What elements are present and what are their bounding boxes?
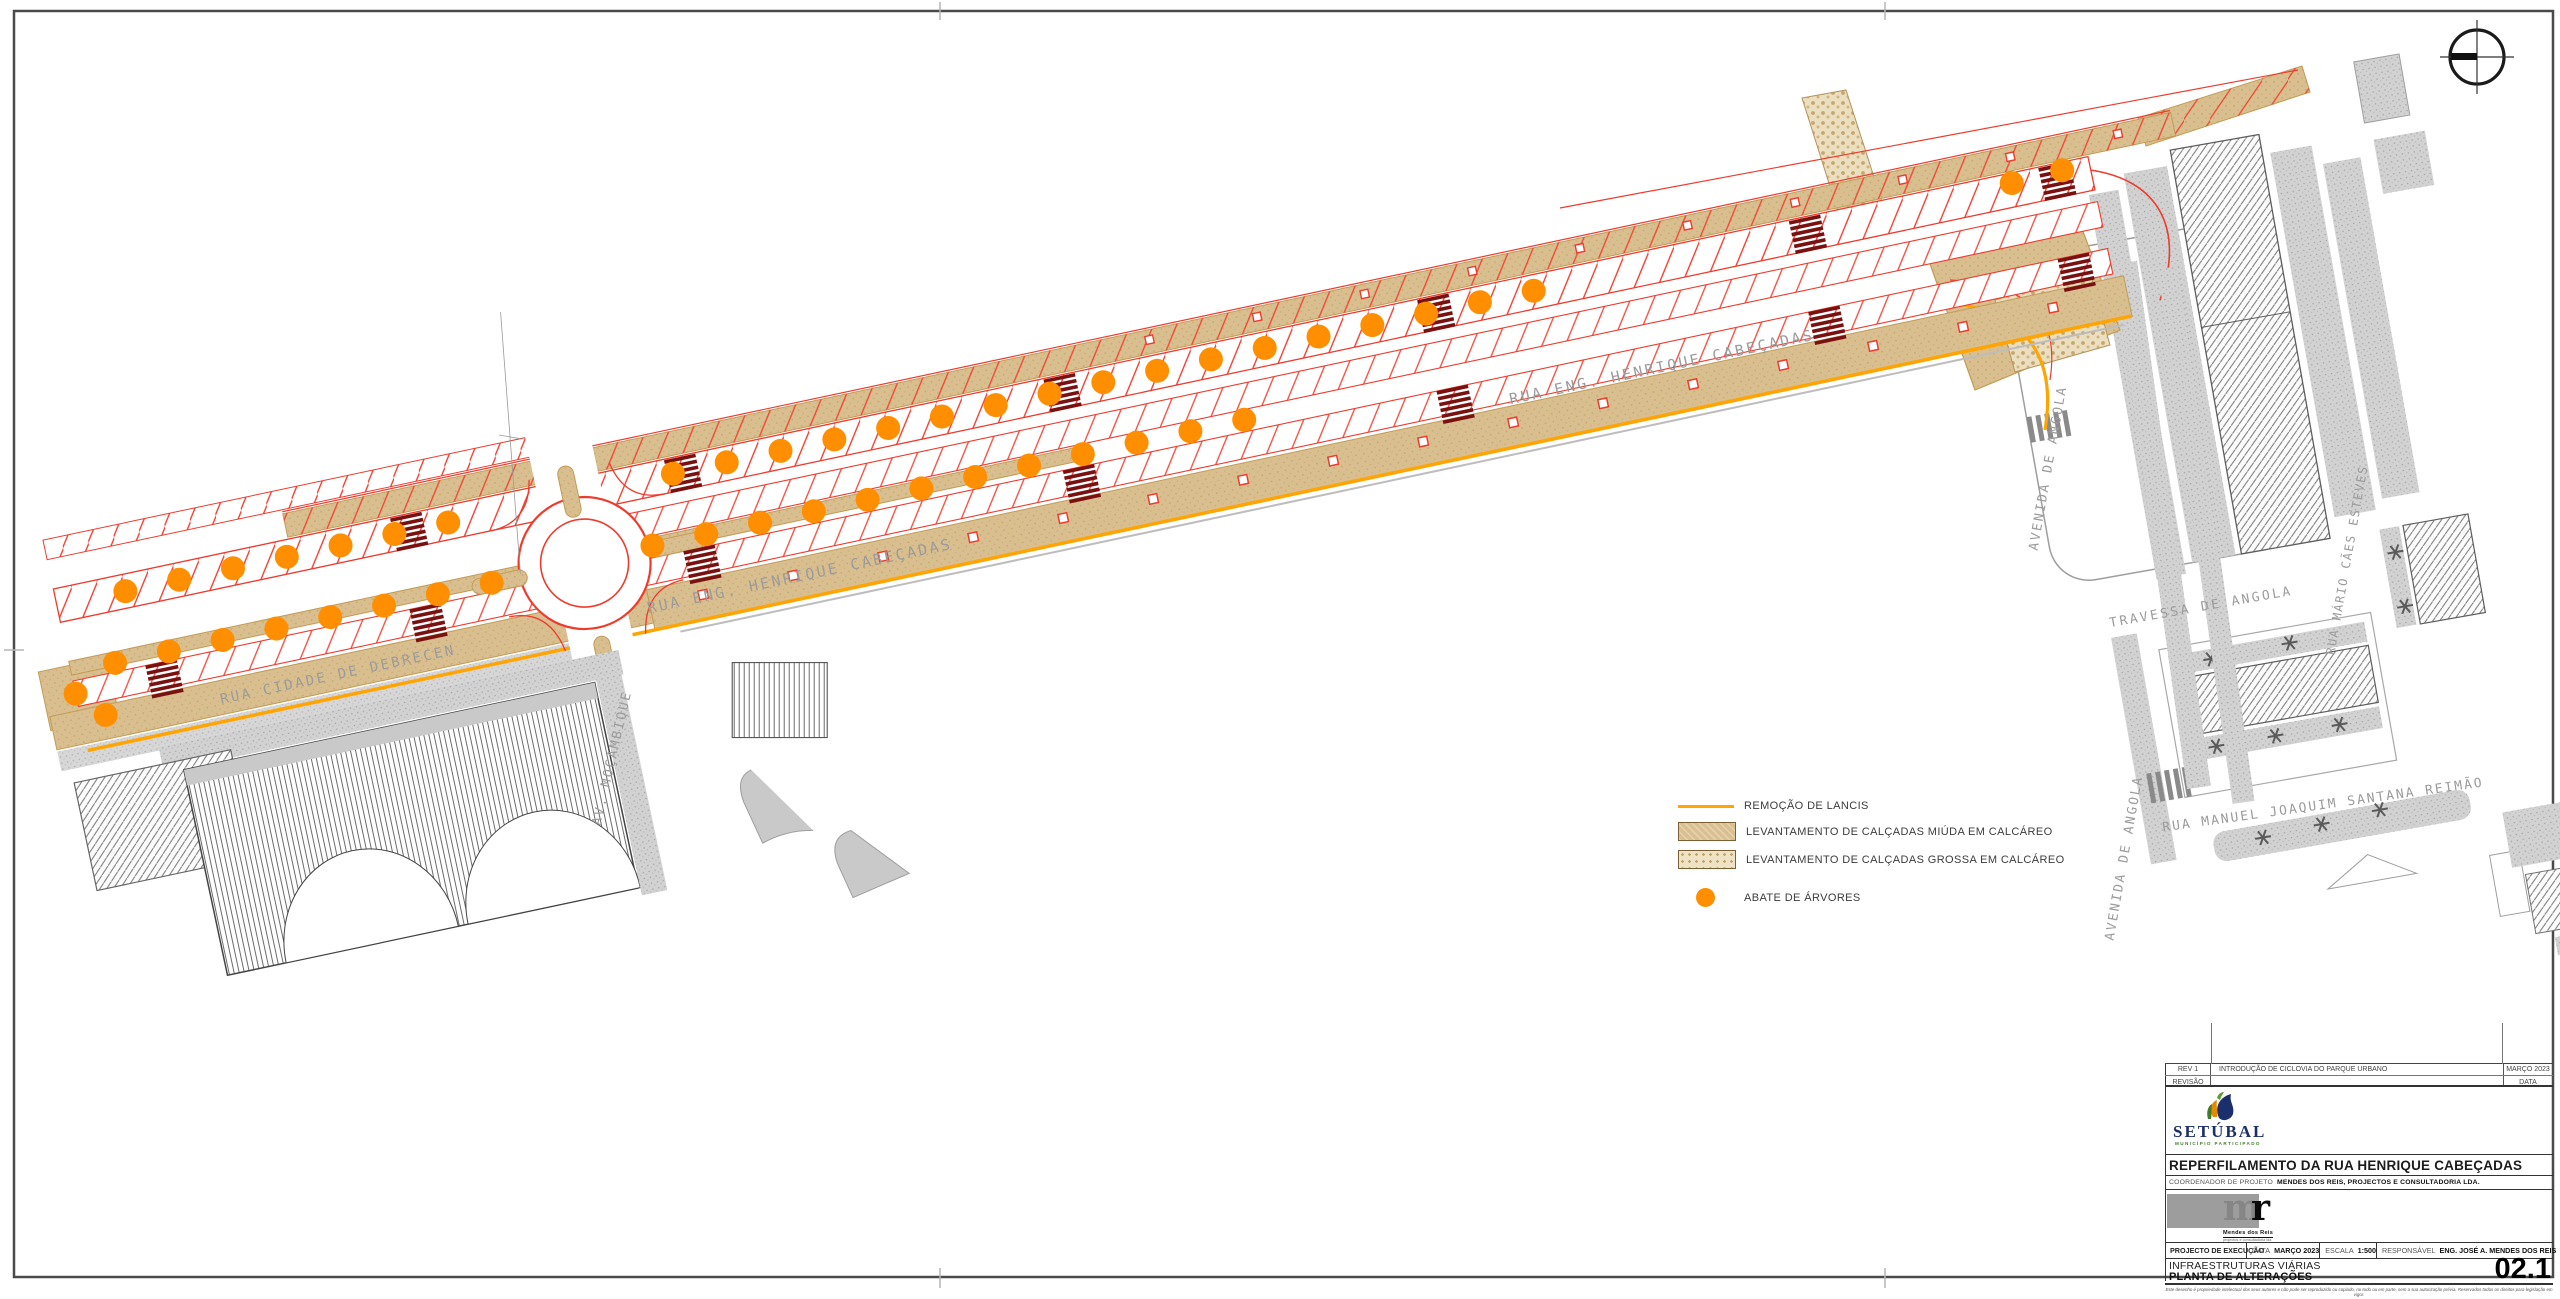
date-cell: DATA MARÇO 2023 bbox=[2247, 1243, 2320, 1258]
tree-pit bbox=[1598, 398, 1609, 409]
tree-pit bbox=[1778, 360, 1789, 371]
tree-pit bbox=[1958, 321, 1969, 332]
responsible-label: RESPONSÁVEL bbox=[2382, 1246, 2436, 1255]
date-value: MARÇO 2023 bbox=[2274, 1246, 2319, 1255]
coordinator-value: MENDES DOS REIS, PROJECTOS E CONSULTADOR… bbox=[2277, 1179, 2480, 1186]
drawing-sheet: RUA ENG. HENRIQUE CABEÇADAS RUA ENG. HEN… bbox=[0, 0, 2560, 1299]
tree-pit bbox=[1360, 289, 1369, 298]
mendes-dos-reis-logo: m r Mendes dos Reis projectos e consulta… bbox=[2165, 1190, 2553, 1242]
revision-table: REV 1 INTRODUÇÃO DE CICLOVIA DO PARQUE U… bbox=[2165, 1063, 2553, 1087]
revision-desc: INTRODUÇÃO DE CICLOVIA DO PARQUE URBANO bbox=[2211, 1066, 2503, 1073]
setubal-municipality-logo: SETÚBAL MUNICÍPIO PARTICIPADO bbox=[2173, 1092, 2293, 1150]
municipality-tagline: MUNICÍPIO PARTICIPADO bbox=[2175, 1141, 2261, 1146]
tree-pit bbox=[1145, 335, 1154, 344]
revision-date-header: DATA bbox=[2503, 1079, 2553, 1086]
revision-header-row: REVISÃO DATA bbox=[2165, 1076, 2553, 1088]
tree-pit bbox=[1252, 312, 1261, 321]
legend-label: REMOÇÃO DE LANCIS bbox=[1744, 800, 1869, 812]
tree-pit bbox=[1418, 436, 1429, 447]
legend-item: LEVANTAMENTO DE CALÇADAS GROSSA EM CALCÁ… bbox=[1678, 850, 2065, 869]
street-label: AVENIDA DE ANGOLA bbox=[2103, 775, 2147, 942]
tree-pit bbox=[1790, 198, 1799, 207]
tree-pit bbox=[1688, 379, 1699, 390]
revision-col-header: REVISÃO bbox=[2165, 1079, 2211, 1086]
legend-label: LEVANTAMENTO DE CALÇADAS MIÚDA EM CALCÁR… bbox=[1746, 826, 2053, 838]
tree-pit bbox=[1508, 417, 1519, 428]
legend-swatch-orange-circle bbox=[1696, 888, 1715, 907]
legend-item: ABATE DE ÁRVORES bbox=[1678, 888, 1861, 907]
legend-label: ABATE DE ÁRVORES bbox=[1744, 892, 1861, 904]
boulevard bbox=[0, 0, 2284, 1106]
copyright-note: Este desenho é propriedade intelectual d… bbox=[2165, 1283, 2553, 1297]
legend-swatch-tan-solid bbox=[1678, 822, 1736, 841]
street-label: TRAVESSA DE ANGOLA bbox=[2108, 584, 2294, 631]
legend-swatch-tan-dotted bbox=[1678, 850, 1736, 869]
scale-value: 1:500 bbox=[2358, 1246, 2376, 1255]
side-buildings bbox=[629, 594, 923, 985]
tree-pit bbox=[2048, 302, 2059, 313]
date-label: DATA bbox=[2252, 1246, 2270, 1255]
tree-pit bbox=[1575, 243, 1584, 252]
phase-cell: PROJECTO DE EXECUÇÃO bbox=[2165, 1243, 2247, 1258]
tree-pit bbox=[968, 532, 979, 543]
revision-row: REV 1 INTRODUÇÃO DE CICLOVIA DO PARQUE U… bbox=[2165, 1064, 2553, 1076]
tree-pit bbox=[1468, 266, 1477, 275]
revision-id: REV 1 bbox=[2165, 1066, 2211, 1073]
tree-pit bbox=[1683, 221, 1692, 230]
sheet-footer: INFRAESTRUTURAS VIÁRIAS PLANTA DE ALTERA… bbox=[2165, 1259, 2553, 1281]
legend-item: REMOÇÃO DE LANCIS bbox=[1678, 800, 1869, 812]
company-name: Mendes dos Reis bbox=[2223, 1230, 2273, 1238]
sheet-number: 02.1 bbox=[2495, 1253, 2551, 1286]
project-title: REPERFILAMENTO DA RUA HENRIQUE CABEÇADAS bbox=[2165, 1158, 2522, 1173]
mr-logo-r: r bbox=[2251, 1189, 2270, 1227]
drawing-title: PLANTA DE ALTERAÇÕES bbox=[2169, 1271, 2312, 1283]
tree-pit bbox=[2006, 152, 2015, 161]
coordinator-label: COORDENADOR DE PROJETO bbox=[2165, 1179, 2273, 1186]
scale-label: ESCALA bbox=[2325, 1246, 2353, 1255]
project-title-row: REPERFILAMENTO DA RUA HENRIQUE CABEÇADAS bbox=[2165, 1154, 2553, 1176]
title-block: REV 1 INTRODUÇÃO DE CICLOVIA DO PARQUE U… bbox=[2165, 1022, 2553, 1279]
tree-pit bbox=[1148, 494, 1159, 505]
municipality-name: SETÚBAL bbox=[2173, 1122, 2266, 1142]
tree-pit bbox=[1898, 175, 1907, 184]
tree-pit bbox=[1238, 474, 1249, 485]
tree-pit bbox=[1868, 341, 1879, 352]
north-arrow-icon bbox=[2440, 20, 2514, 94]
tree-pit bbox=[1058, 513, 1069, 524]
legend: REMOÇÃO DE LANCIS LEVANTAMENTO DE CALÇAD… bbox=[1678, 792, 2078, 922]
revision-date: MARÇO 2023 bbox=[2503, 1066, 2553, 1073]
scale-cell: ESCALA 1:500 bbox=[2320, 1243, 2377, 1258]
legend-label: LEVANTAMENTO DE CALÇADAS GROSSA EM CALCÁ… bbox=[1746, 854, 2065, 866]
tree-pit bbox=[1328, 455, 1339, 466]
legend-swatch-orange-line bbox=[1678, 805, 1734, 808]
tree-pit bbox=[2113, 129, 2122, 138]
legend-item: LEVANTAMENTO DE CALÇADAS MIÚDA EM CALCÁR… bbox=[1678, 822, 2053, 841]
